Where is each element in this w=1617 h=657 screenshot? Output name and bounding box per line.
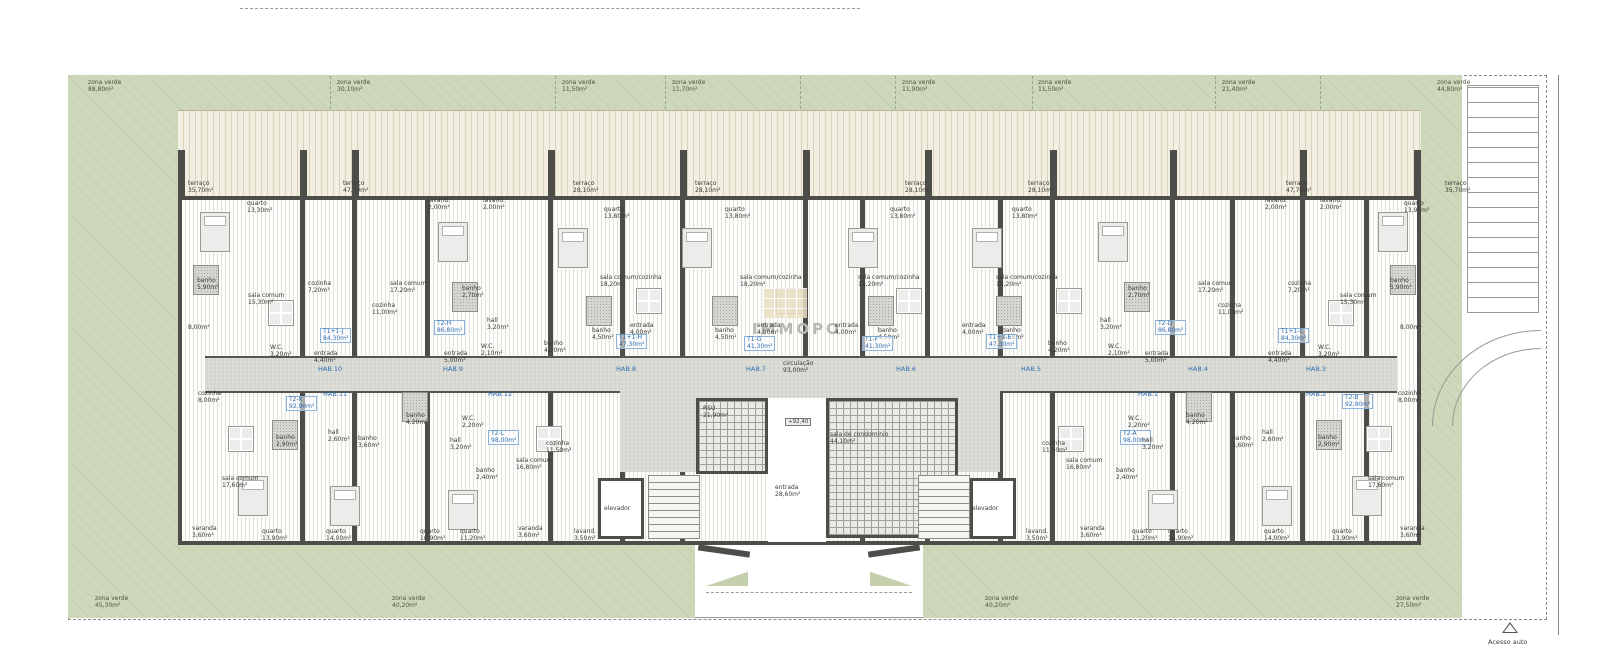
room-label: terraço28,10m² <box>905 181 930 194</box>
bed-icon <box>330 486 360 526</box>
room-label: terraço28,10m² <box>1028 181 1053 194</box>
hab-number-label: HAB.6 <box>896 366 916 373</box>
unit-type-label: T1+1-H47,30m² <box>616 334 647 349</box>
room-label: circulação93,00m² <box>783 361 813 374</box>
room-label: banho4,20m² <box>406 413 428 426</box>
room-label: terraço28,10m² <box>573 181 598 194</box>
zone-divider-line <box>800 76 801 109</box>
room-label: entrada5,00m² <box>444 351 467 364</box>
zone-divider-line <box>1320 76 1321 109</box>
room-label: banho2,70m² <box>1128 286 1150 299</box>
room-label: cozinha11,00m² <box>372 303 397 316</box>
bed-icon <box>972 228 1002 268</box>
zona-verde-label: zona verde44,80m² <box>1437 80 1470 93</box>
room-label: W.C.3,20m² <box>1318 345 1340 358</box>
room-label: hall3,20m² <box>1142 438 1164 451</box>
terrace-wall-stub <box>803 150 810 198</box>
bed-icon <box>1148 490 1178 530</box>
terrace-wall-stub <box>1170 150 1177 198</box>
zone-divider-line <box>1215 76 1216 109</box>
room-label: quarto13,90m² <box>1404 201 1429 214</box>
zona-verde-label: zona verde27,50m² <box>1396 596 1429 609</box>
room-label: entrada28,60m² <box>775 485 800 498</box>
room-label: hall3,20m² <box>487 318 509 331</box>
room-label: sala comum16,80m² <box>516 458 553 471</box>
hab-number-label: HAB.8 <box>616 366 636 373</box>
room-label: banho5,90m² <box>1390 278 1412 291</box>
room-label: W.C.2,10m² <box>481 344 503 357</box>
room-label: quarto13,30m² <box>247 201 272 214</box>
terrace-wall-stub <box>300 150 307 198</box>
bed-icon <box>1098 222 1128 262</box>
room-label: cozinha7,20m² <box>1288 281 1311 294</box>
room-label: banho2,70m² <box>462 286 484 299</box>
zona-verde-label: zona verde45,30m² <box>95 596 128 609</box>
bathroom-fixture-icon <box>868 296 894 326</box>
room-label: varanda3,60m² <box>1080 526 1105 539</box>
room-label: banho3,60m² <box>358 436 380 449</box>
room-label: sala comum/cozinha18,20m² <box>858 275 920 288</box>
unit-type-label: T2-H86,80m² <box>434 320 465 335</box>
room-label: sala comum15,30m² <box>248 293 285 306</box>
terrace-wall-stub <box>680 150 687 198</box>
zona-verde-label: zona verde11,50m² <box>562 80 595 93</box>
watermark-logo <box>763 288 807 318</box>
level-marker: +92,40 <box>785 418 811 426</box>
room-label: elevador <box>972 506 998 513</box>
room-label: cozinha11,00m² <box>1218 303 1243 316</box>
room-label: quarto13,80m² <box>890 207 915 220</box>
room-label: sala comum17,60m² <box>222 476 259 489</box>
room-label: elevador <box>604 506 630 513</box>
access-arrow-icon <box>1502 622 1518 633</box>
hab-number-label: HAB.1 <box>1138 391 1158 398</box>
room-label: banho4,50m² <box>592 328 614 341</box>
room-label: cozinha11,50m² <box>546 441 571 454</box>
zona-verde-label: zona verde40,20m² <box>985 596 1018 609</box>
room-label: entrada4,40m² <box>314 351 337 364</box>
zona-verde-label: zona verde21,40m² <box>1222 80 1255 93</box>
room-label: W.C.2,20m² <box>1128 416 1150 429</box>
room-label: quarto13,90m² <box>1332 529 1357 542</box>
bed-icon <box>1378 212 1408 252</box>
room-label: entrada4,00m² <box>962 323 985 336</box>
room-label: cozinha7,20m² <box>308 281 331 294</box>
dining-table-icon <box>636 288 662 314</box>
room-label: banho2,40m² <box>476 468 498 481</box>
floor-plan-canvas: IMMOPO Acesso auto zona verde88,80m²zona… <box>0 0 1617 657</box>
room-label: quarto14,00m² <box>326 529 351 542</box>
room-label: banho2,90m² <box>1318 435 1340 448</box>
room-label: sala comum17,20m² <box>1198 281 1235 294</box>
room-label: RSU21,90m² <box>703 406 728 419</box>
unit-type-label: T1+1-C84,30m² <box>1278 328 1309 343</box>
unit-type-label: T1-F41,30m² <box>862 336 893 351</box>
zona-verde-label: zona verde11,70m² <box>672 80 705 93</box>
zone-divider-line <box>555 76 556 109</box>
unit-type-label: T2-B92,90m² <box>1342 394 1373 409</box>
room-label: cozinha11,50m² <box>1042 441 1067 454</box>
room-label: sala comum15,30m² <box>1340 293 1377 306</box>
room-label: W.C.3,20m² <box>270 345 292 358</box>
zone-divider-line <box>1032 76 1033 109</box>
bathroom-fixture-icon <box>996 296 1022 326</box>
room-label: sala comum/cozinha18,20m² <box>996 275 1058 288</box>
room-label: cozinha8,00m² <box>1398 391 1421 404</box>
zone-divider-line <box>330 76 331 109</box>
zona-verde-label: zona verde11,50m² <box>1038 80 1071 93</box>
hab-number-label: HAB.7 <box>746 366 766 373</box>
room-label: terraço28,10m² <box>695 181 720 194</box>
bed-icon <box>848 228 878 268</box>
room-label: banho4,20m² <box>1186 413 1208 426</box>
hab-number-label: HAB.5 <box>1021 366 1041 373</box>
room-label: varanda3,60m² <box>518 526 543 539</box>
hab-number-label: HAB.12 <box>488 391 512 398</box>
room-label: hall3,20m² <box>450 438 472 451</box>
hab-number-label: HAB.10 <box>318 366 342 373</box>
room-label: 8,00m² <box>1400 325 1422 332</box>
room-label: W.C.2,10m² <box>1108 344 1130 357</box>
room-label: sala de condomínio44,10m² <box>830 432 888 445</box>
room-label: lavand.2,00m² <box>428 198 450 211</box>
access-label: Acesso auto <box>1488 638 1527 646</box>
hab-number-label: HAB.4 <box>1188 366 1208 373</box>
dining-table-icon <box>228 426 254 452</box>
unit-type-label: T1+1-E47,30m² <box>986 334 1017 349</box>
bed-icon <box>682 228 712 268</box>
room-label: hall2,60m² <box>328 430 350 443</box>
room-label: sala comum17,20m² <box>390 281 427 294</box>
stairs-right <box>918 475 970 539</box>
room-label: quarto13,80m² <box>725 207 750 220</box>
room-label: sala comum/cozinha18,20m² <box>600 275 662 288</box>
terrace-wall-stub <box>178 150 185 198</box>
room-label: lavand.2,00m² <box>1320 198 1342 211</box>
neighbor-boundary-line <box>240 8 860 9</box>
room-label: terraço35,70m² <box>1445 181 1470 194</box>
bathroom-fixture-icon <box>712 296 738 326</box>
room-label: entrada4,40m² <box>1268 351 1291 364</box>
room-label: quarto16,90m² <box>420 529 445 542</box>
room-label: banho5,90m² <box>197 278 219 291</box>
unit-type-label: T1-G41,30m² <box>744 336 775 351</box>
bed-icon <box>1262 486 1292 526</box>
room-label: 8,00m² <box>188 325 210 332</box>
unit-type-label: T2-K92,90m² <box>286 396 317 411</box>
bed-icon <box>558 228 588 268</box>
room-label: entrada4,00m² <box>835 323 858 336</box>
bed-icon <box>438 222 468 262</box>
hab-number-label: HAB.3 <box>1306 366 1326 373</box>
hab-number-label: HAB.9 <box>443 366 463 373</box>
room-label: banho4,20m² <box>1048 341 1070 354</box>
room-label: hall3,20m² <box>1100 318 1122 331</box>
forecourt-step-line <box>706 592 912 593</box>
room-label: entrada5,00m² <box>1145 351 1168 364</box>
zone-divider-line <box>665 76 666 109</box>
room-label: quarto16,90m² <box>1168 529 1193 542</box>
stairs-left <box>648 475 700 539</box>
room-label: quarto13,80m² <box>604 207 629 220</box>
room-label: banho3,60m² <box>1232 436 1254 449</box>
bed-icon <box>448 490 478 530</box>
unit-type-label: T2-L98,00m² <box>488 430 519 445</box>
parking-ramp <box>1467 85 1539 313</box>
room-label: terraço47,70m² <box>1286 181 1311 194</box>
room-label: cozinha8,00m² <box>198 391 221 404</box>
room-label: lavand.3,50m² <box>1026 529 1048 542</box>
room-label: W.C.2,20m² <box>462 416 484 429</box>
zona-verde-label: zona verde88,80m² <box>88 80 121 93</box>
room-label: lavand.3,50m² <box>574 529 596 542</box>
room-label: hall2,60m² <box>1262 430 1284 443</box>
room-label: quarto13,80m² <box>1012 207 1037 220</box>
room-label: sala comum17,60m² <box>1368 476 1405 489</box>
zona-verde-label: zona verde11,90m² <box>902 80 935 93</box>
room-label: quarto13,90m² <box>262 529 287 542</box>
unit-type-label: T2-D86,80m² <box>1155 320 1186 335</box>
room-label: sala comum/cozinha18,20m² <box>740 275 802 288</box>
room-label: quarto11,20m² <box>460 529 485 542</box>
dining-table-icon <box>896 288 922 314</box>
unit-type-label: T1+1-J84,30m² <box>320 328 351 343</box>
room-label: banho4,50m² <box>715 328 737 341</box>
dining-table-icon <box>1366 426 1392 452</box>
room-label: banho4,20m² <box>544 341 566 354</box>
room-label: entrada4,00m² <box>757 323 780 336</box>
zone-divider-line <box>895 76 896 109</box>
room-label: lavand.2,00m² <box>1265 198 1287 211</box>
bed-icon <box>200 212 230 252</box>
plot-edge-line <box>1558 75 1559 635</box>
room-label: terraço35,70m² <box>188 181 213 194</box>
bathroom-fixture-icon <box>586 296 612 326</box>
room-label: varanda3,60m² <box>1400 526 1425 539</box>
terrace-wall-stub <box>548 150 555 198</box>
room-label: banho2,90m² <box>276 435 298 448</box>
room-label: banho2,40m² <box>1116 468 1138 481</box>
room-label: terraço47,70m² <box>343 181 368 194</box>
dining-table-icon <box>1056 288 1082 314</box>
hab-number-label: HAB.2 <box>1306 391 1326 398</box>
zona-verde-label: zona verde40,20m² <box>392 596 425 609</box>
room-label: quarto11,20m² <box>1132 529 1157 542</box>
room-label: varanda3,60m² <box>192 526 217 539</box>
hab-number-label: HAB.11 <box>323 391 347 398</box>
room-label: quarto14,00m² <box>1264 529 1289 542</box>
room-label: lavand.2,00m² <box>483 198 505 211</box>
terrace-wall-stub <box>1414 150 1421 198</box>
room-label: sala comum16,80m² <box>1066 458 1103 471</box>
zona-verde-label: zona verde30,10m² <box>337 80 370 93</box>
